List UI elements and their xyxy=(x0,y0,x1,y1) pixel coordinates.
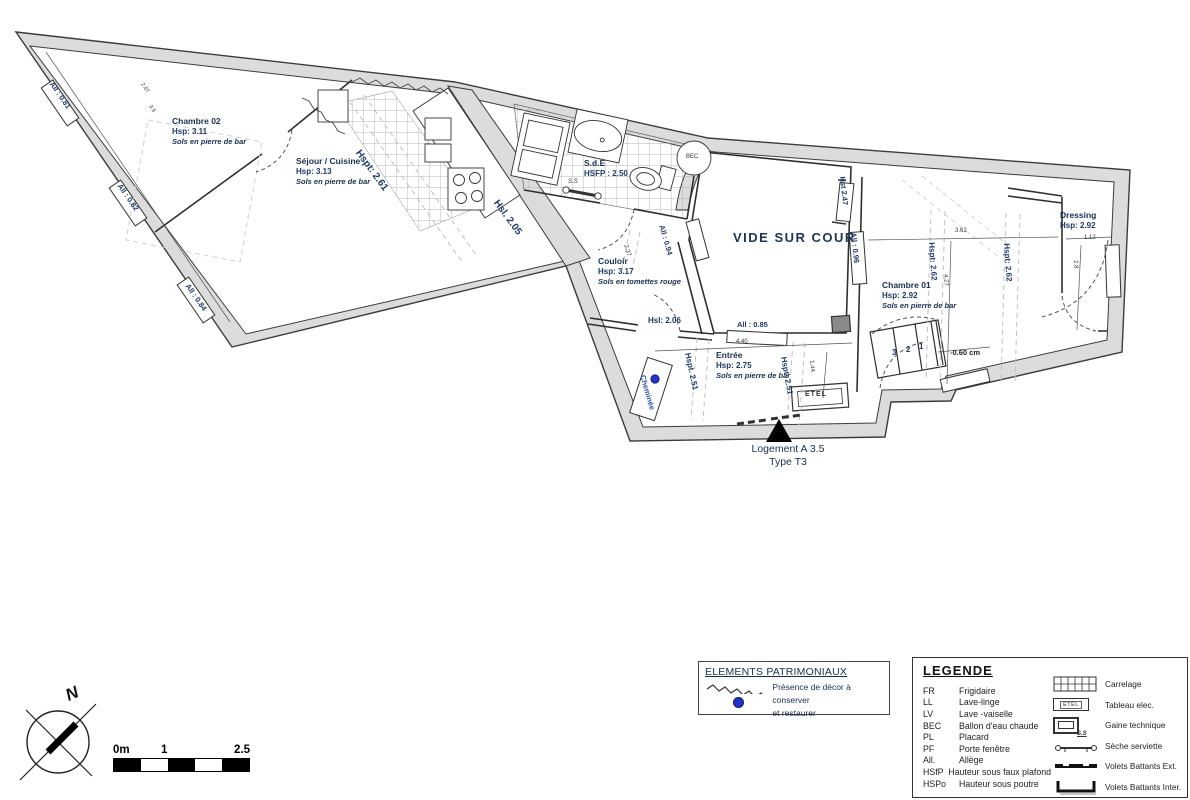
stair-number-1: 1 xyxy=(919,342,923,351)
dim-hsl-206: Hsl: 2.06 xyxy=(648,316,681,325)
patrimonial-title: ELEMENTS PATRIMONIAUX xyxy=(705,666,883,678)
etel-label: ETEL xyxy=(805,391,827,398)
legend-title: LEGENDE xyxy=(923,663,993,678)
ss-label: S.S xyxy=(568,179,578,185)
legend-abbreviations: FRFrigidaire LLLave-linge LVLave -vaisel… xyxy=(923,685,1051,789)
north-compass: N xyxy=(10,684,140,794)
room-label-sde: S.d.E HSFP : 2.50 xyxy=(584,158,628,179)
seche-serviette-icon: S.S xyxy=(1053,738,1105,754)
bec-label: BEC xyxy=(686,154,698,160)
stair-number-3: 3 xyxy=(892,348,896,357)
plan-title-line1: Logement A 3.5 xyxy=(722,443,854,456)
dim-427: 4.27 xyxy=(942,274,949,286)
legend-box: LEGENDE FRFrigidaire LLLave-linge LVLave… xyxy=(912,657,1188,798)
scale-label-0m: 0m xyxy=(113,744,130,756)
entrance-marker-triangle xyxy=(766,419,792,442)
volets-inter-icon xyxy=(1053,779,1105,795)
room-label-entree: Entrée Hsp: 2.75 Sols en pierre de bar xyxy=(716,350,790,381)
patrimonial-symbol xyxy=(705,681,772,719)
patrimonial-description: Présence de décor à conserver et restaur… xyxy=(772,681,883,719)
wavy-line-icon xyxy=(705,682,771,694)
scale-label-1: 1 xyxy=(161,744,167,756)
dim-28: 2.8 xyxy=(1072,260,1079,269)
patrimonial-legend-box: ELEMENTS PATRIMONIAUX Présence de décor … xyxy=(698,661,890,715)
volets-ext-icon xyxy=(1053,761,1105,771)
dim-060: -0.60 cm xyxy=(950,348,980,357)
blue-dot-icon xyxy=(733,697,744,708)
room-label-chambre02: Chambre 02 Hsp: 3.11 Sols en pierre de b… xyxy=(172,116,246,147)
stair-number-2: 2 xyxy=(906,345,910,354)
technical-duct xyxy=(831,315,850,332)
courtyard-label: VIDE SUR COUR xyxy=(733,230,856,245)
patrimonial-dot xyxy=(651,375,659,383)
window-label-all-085: All : 0.85 xyxy=(737,320,768,329)
legend-symbols: Carrelage ETEL Tableau elec. Gaine techn… xyxy=(1053,674,1185,797)
tableau-elec-icon: ETEL xyxy=(1053,698,1105,711)
dim-362: 3.62 xyxy=(955,228,967,234)
room-label-dressing: Dressing Hsp: 2.92 xyxy=(1060,210,1096,231)
carrelage-grid-icon xyxy=(1053,676,1105,692)
scale-bar-segments xyxy=(113,758,250,772)
room-label-couloir: Couloir Hsp: 3.17 Sols en tomettes rouge xyxy=(598,256,681,287)
floorplan-page: Chambre 02 Hsp: 3.11 Sols en pierre de b… xyxy=(0,0,1190,800)
dim-440: 4.40 xyxy=(736,339,748,345)
dim-112: 1.12 xyxy=(1084,235,1096,241)
dim-144: 1.44 xyxy=(808,360,815,372)
plan-title-line2: Type T3 xyxy=(722,456,854,469)
scale-label-2-5: 2.5 xyxy=(234,744,250,756)
plan-title: Logement A 3.5 Type T3 xyxy=(722,443,854,469)
scale-bar: 0m 1 2.5 xyxy=(113,744,250,772)
